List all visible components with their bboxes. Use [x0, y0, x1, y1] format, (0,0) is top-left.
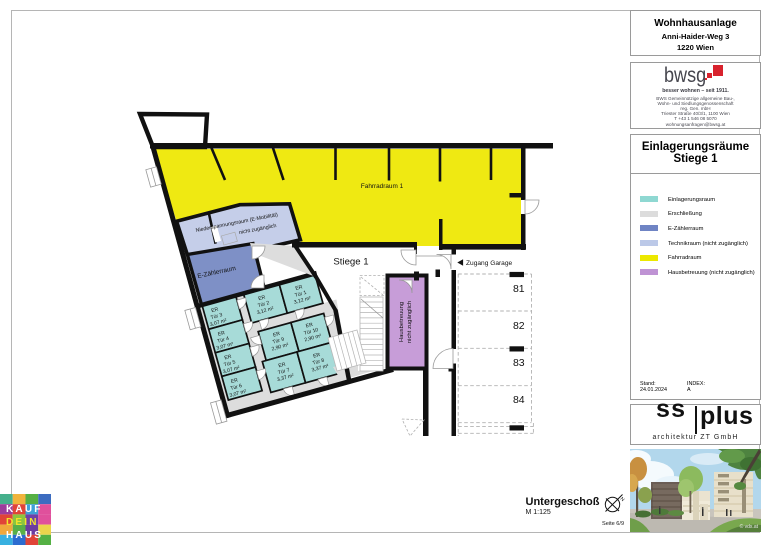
svg-text:KAUF: KAUF — [6, 504, 43, 515]
svg-text:Stiege 1: Stiege 1 — [333, 257, 368, 268]
svg-text:Fahrradraum 1: Fahrradraum 1 — [361, 183, 404, 190]
svg-text:Zugang Garage: Zugang Garage — [466, 260, 513, 267]
svg-text:DEIN: DEIN — [6, 517, 39, 528]
svg-text:HAUS: HAUS — [6, 530, 43, 541]
svg-text:© vdx.at: © vdx.at — [740, 523, 759, 530]
svg-text:83: 83 — [513, 357, 525, 369]
svg-text:Seite 6/9: Seite 6/9 — [602, 521, 624, 527]
svg-text:M 1:125: M 1:125 — [526, 509, 551, 516]
svg-text:nicht zugänglich: nicht zugänglich — [407, 301, 413, 343]
svg-text:Hausbetreuung: Hausbetreuung — [399, 302, 405, 342]
svg-text:Untergeschoß: Untergeschoß — [526, 496, 600, 508]
svg-text:81: 81 — [513, 283, 525, 295]
svg-text:84: 84 — [513, 394, 525, 406]
svg-text:82: 82 — [513, 320, 525, 332]
